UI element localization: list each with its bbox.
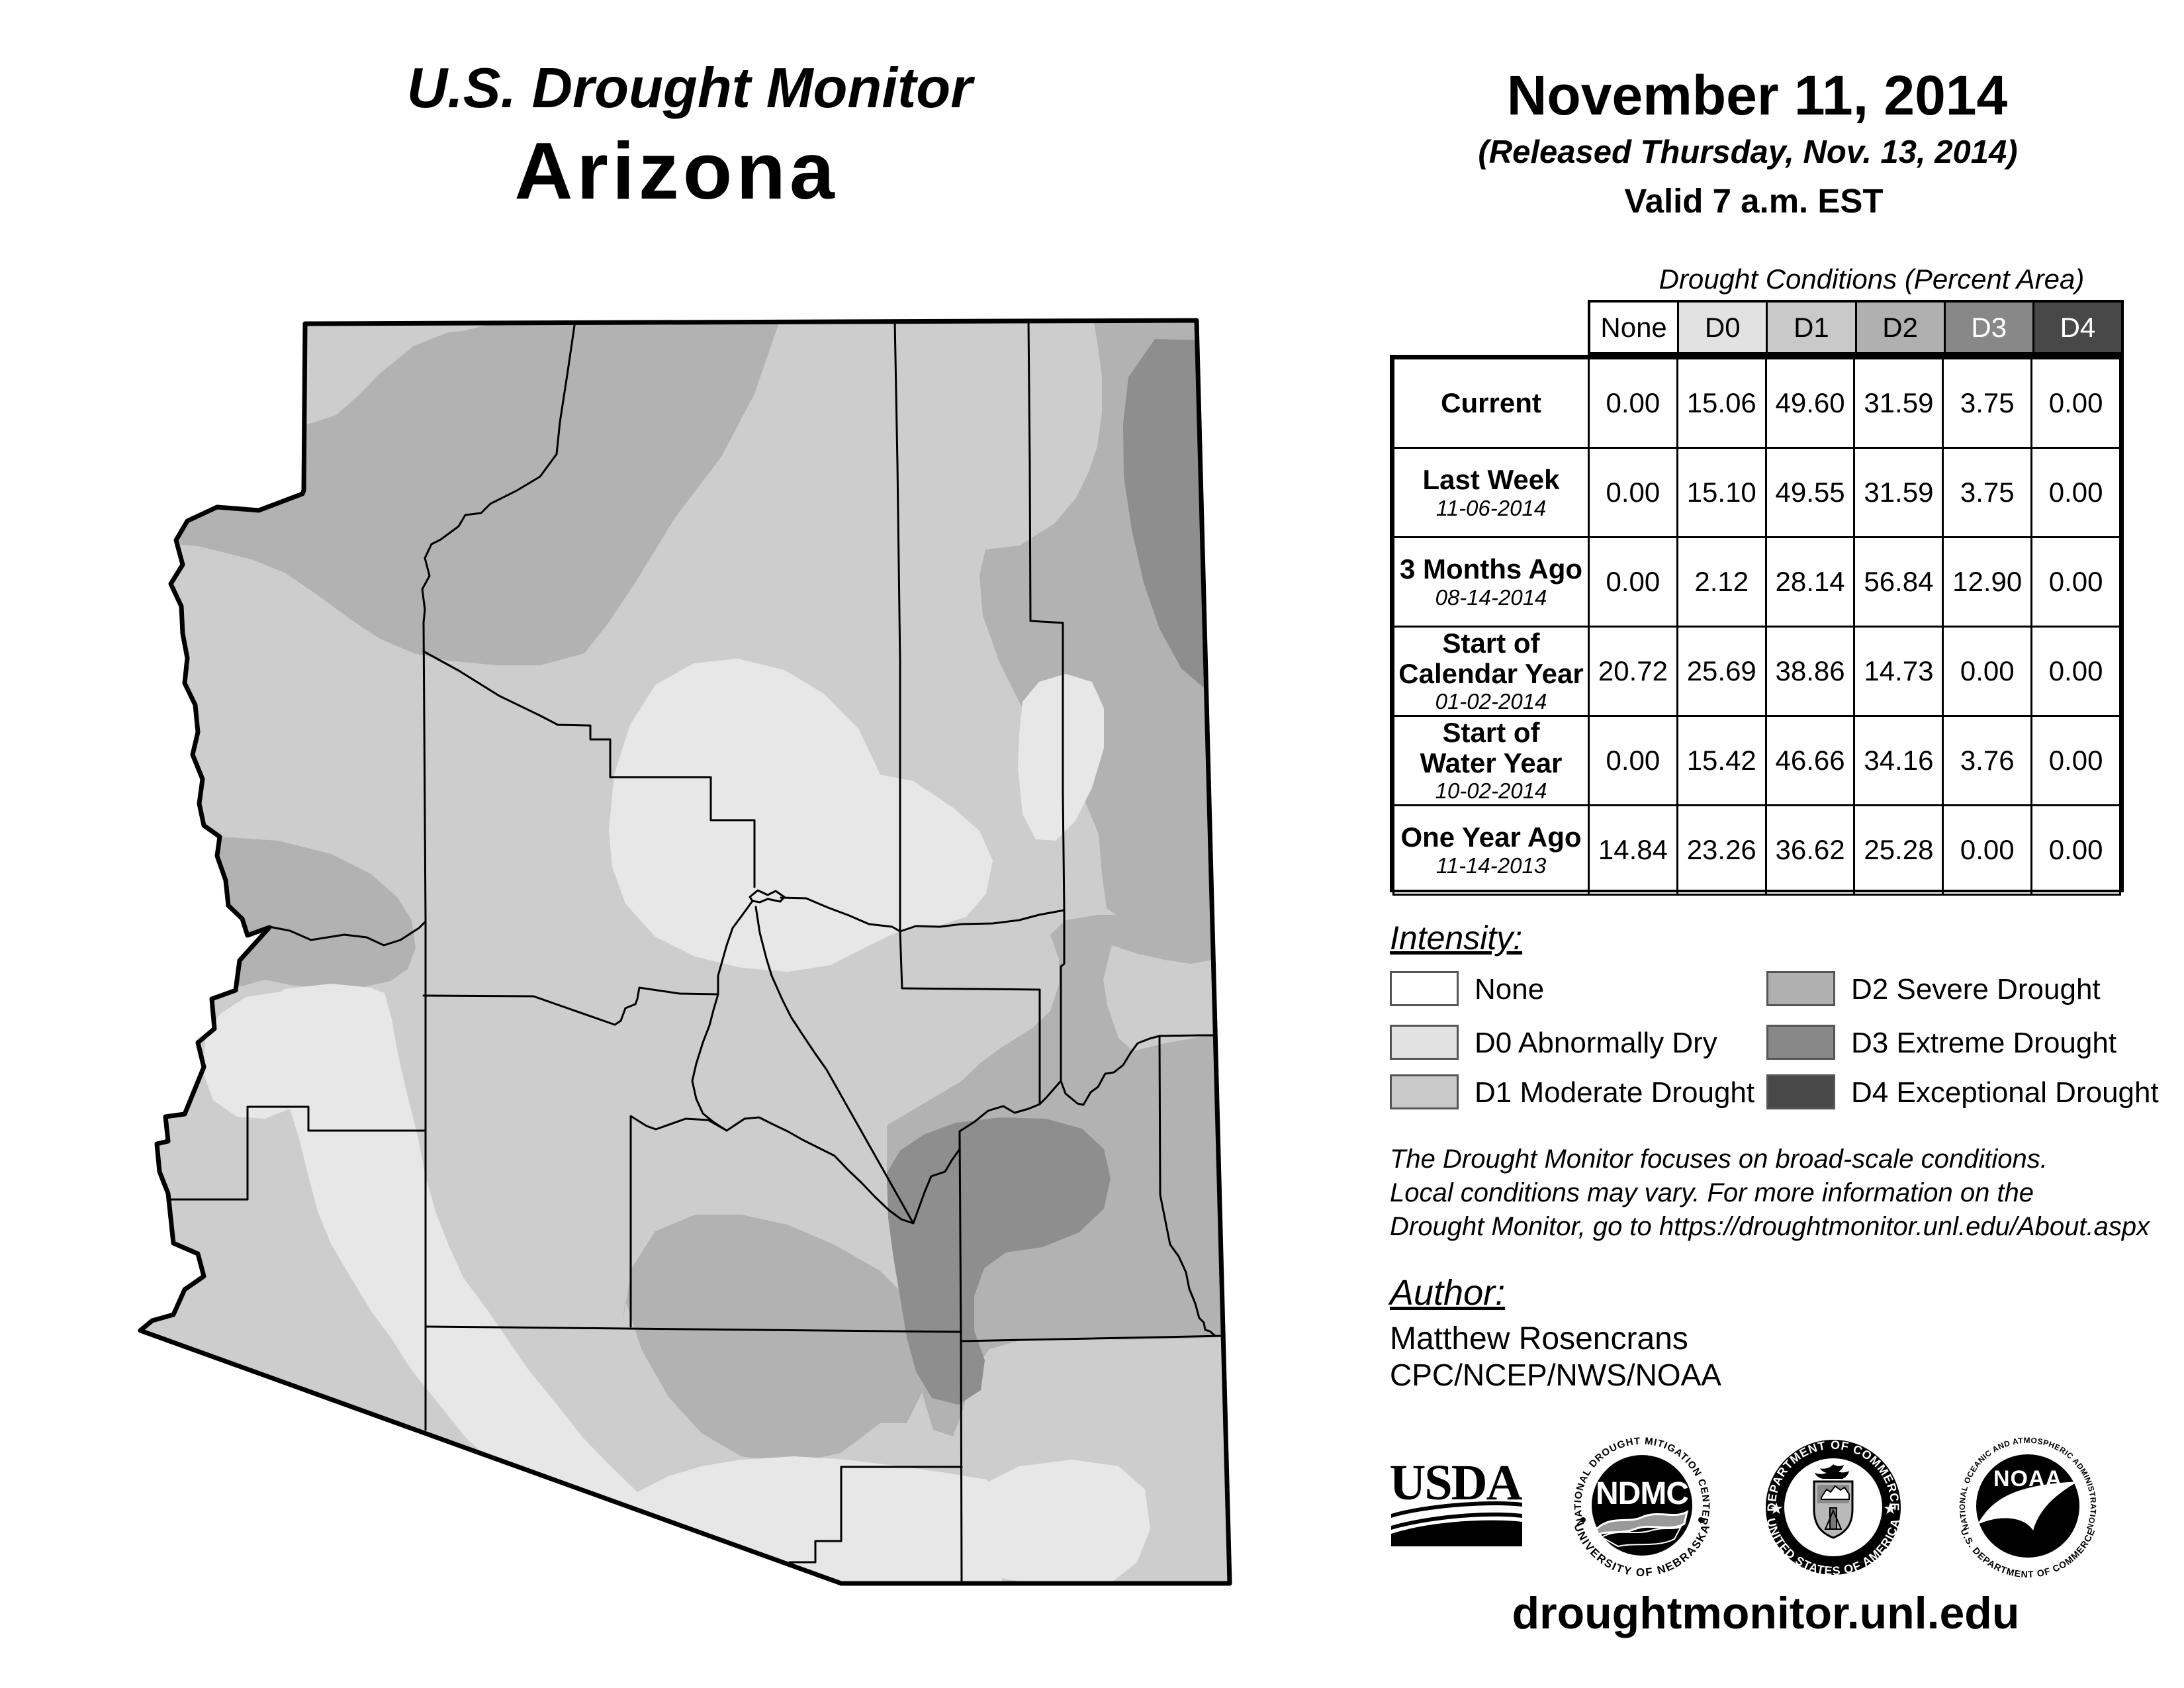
svg-text:★: ★ bbox=[1883, 1500, 1897, 1518]
svg-text:★: ★ bbox=[1769, 1500, 1784, 1518]
svg-text:NDMC: NDMC bbox=[1596, 1476, 1688, 1511]
